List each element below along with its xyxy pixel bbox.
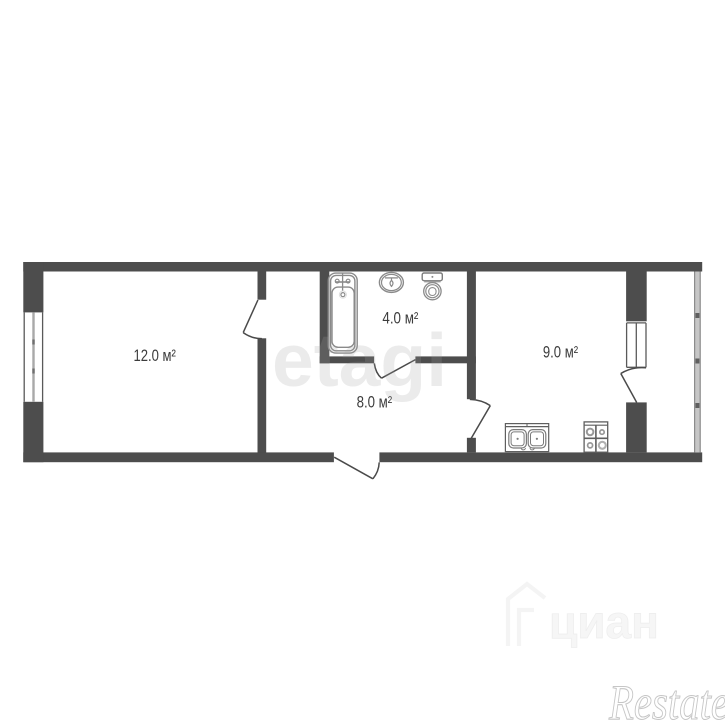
svg-text:Restate: Restate	[608, 674, 725, 725]
svg-text:etagi: etagi	[272, 318, 447, 402]
svg-text:12.0 м²: 12.0 м²	[134, 346, 177, 365]
svg-text:циан: циан	[549, 596, 659, 648]
svg-text:9.0 м²: 9.0 м²	[543, 343, 579, 361]
